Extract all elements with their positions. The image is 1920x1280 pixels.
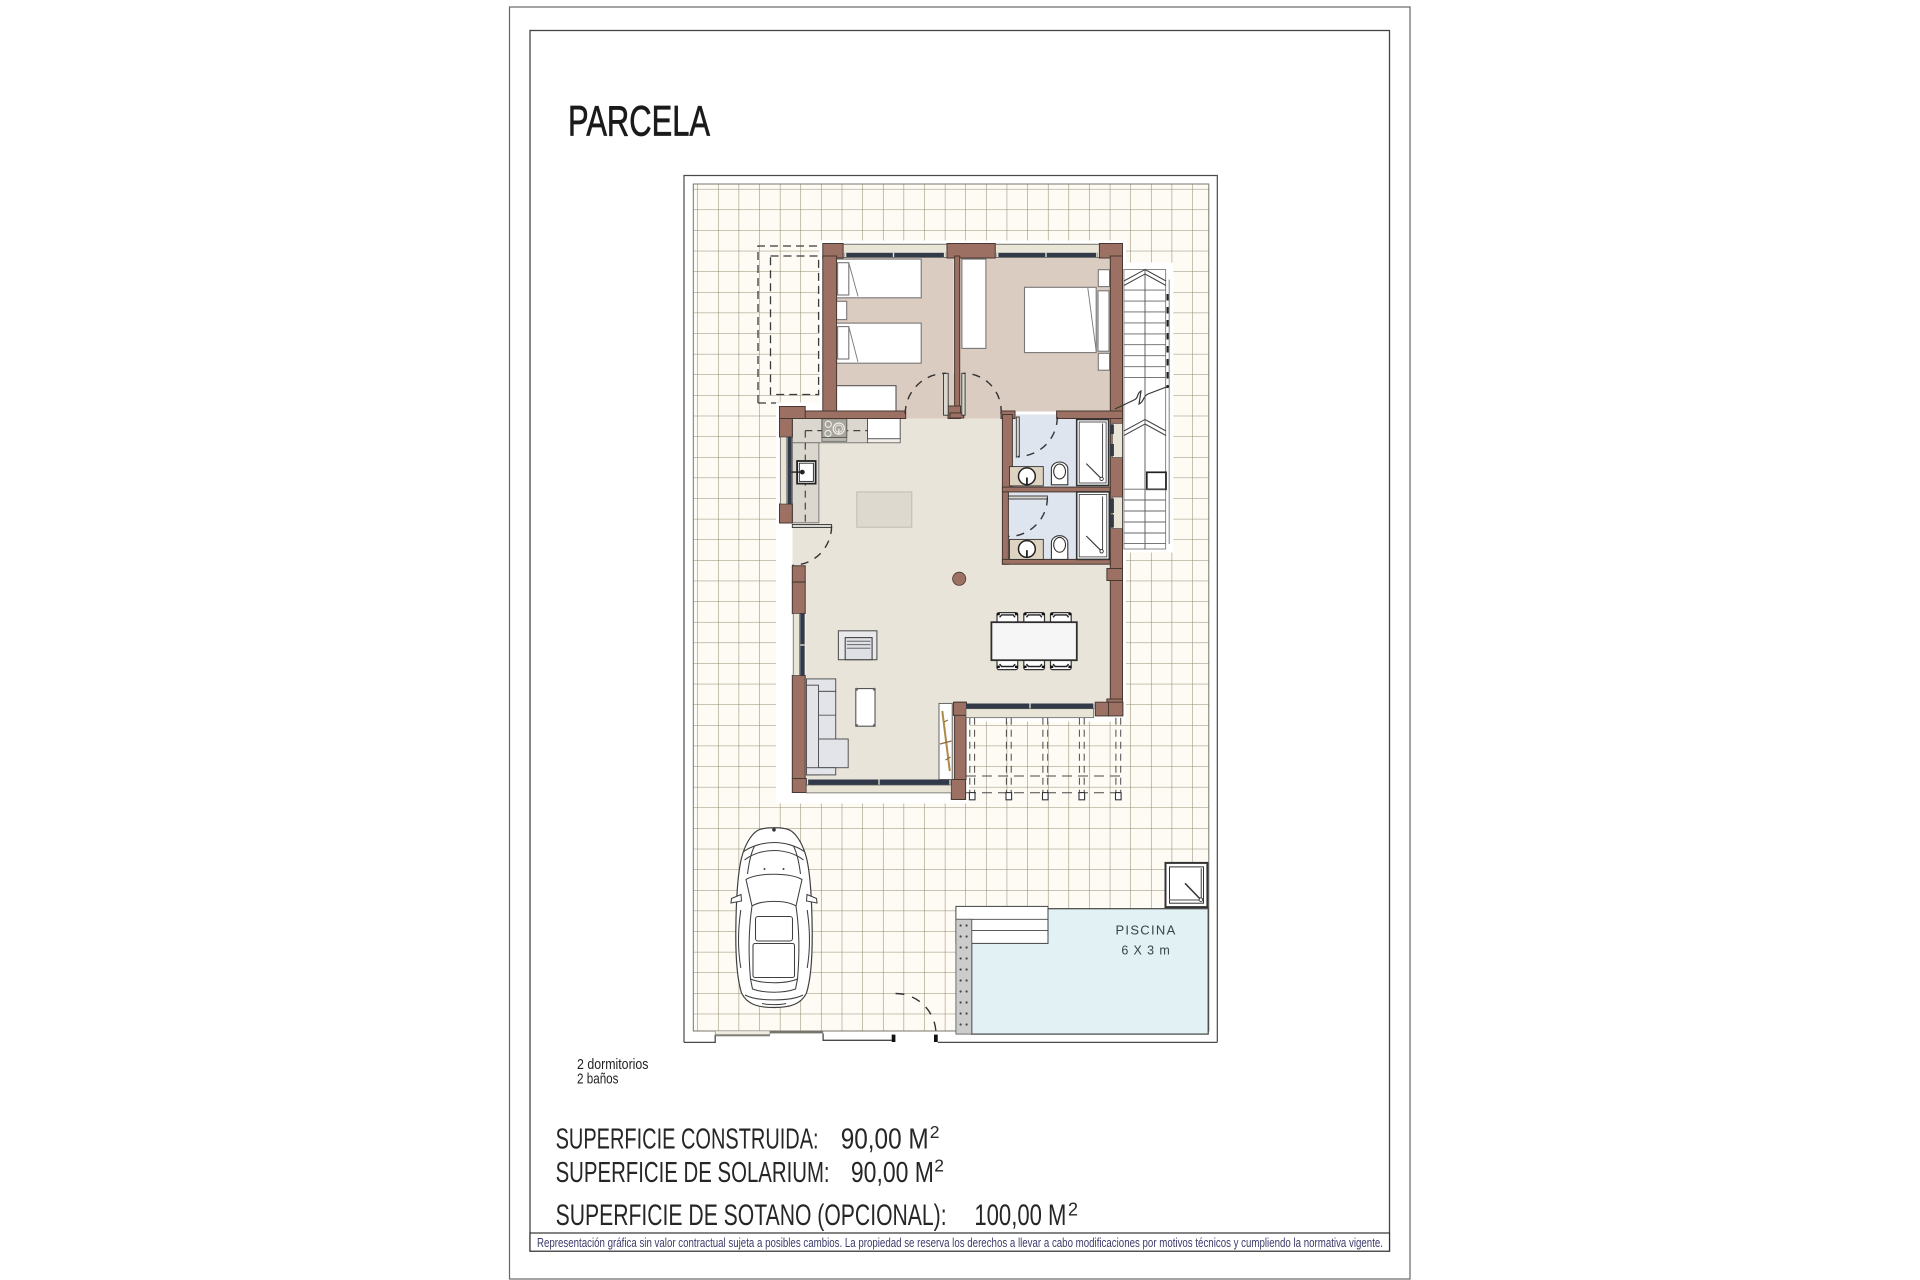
svg-text:2: 2 <box>1068 1200 1078 1220</box>
svg-text:SUPERFICIE DE SOTANO (OPCIONAL: SUPERFICIE DE SOTANO (OPCIONAL): <box>556 1199 947 1232</box>
svg-text:2: 2 <box>934 1156 944 1176</box>
svg-text:PISCINA: PISCINA <box>1115 923 1176 938</box>
svg-text:6 X 3 m: 6 X 3 m <box>1121 944 1170 958</box>
svg-text:SUPERFICIE DE SOLARIUM:: SUPERFICIE DE SOLARIUM: <box>556 1157 830 1189</box>
svg-text:100,00 M: 100,00 M <box>974 1199 1066 1232</box>
svg-text:PARCELA: PARCELA <box>568 98 710 146</box>
svg-text:2 baños: 2 baños <box>577 1072 619 1088</box>
svg-text:2: 2 <box>930 1122 940 1142</box>
svg-text:Representación gráfica sin val: Representación gráfica sin valor contrac… <box>537 1236 1383 1250</box>
svg-text:90,00 M: 90,00 M <box>851 1157 934 1189</box>
svg-text:90,00 M: 90,00 M <box>841 1123 929 1155</box>
svg-text:SUPERFICIE CONSTRUIDA:: SUPERFICIE CONSTRUIDA: <box>556 1123 819 1155</box>
